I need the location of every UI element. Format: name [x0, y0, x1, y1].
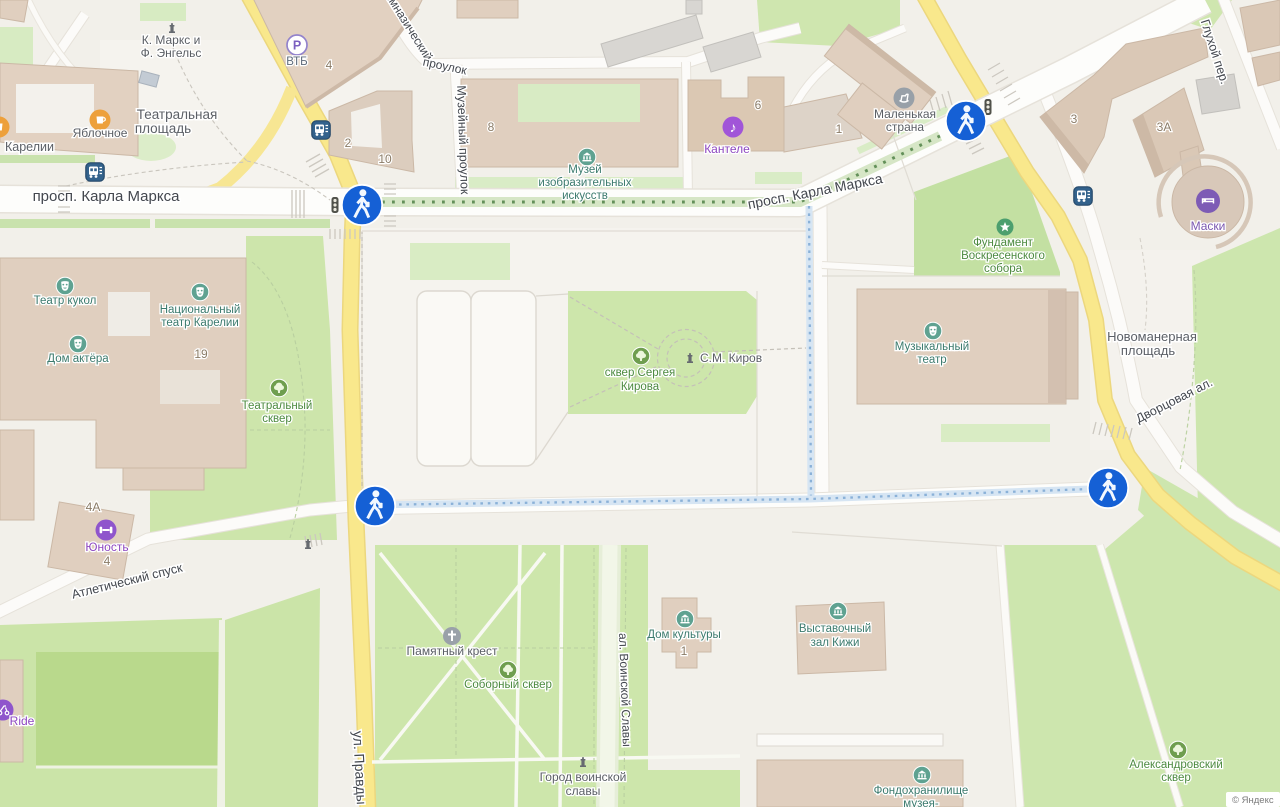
- svg-text:театр Карелии: театр Карелии: [161, 317, 239, 329]
- svg-text:Маски: Маски: [1191, 219, 1226, 233]
- svg-text:Дом культуры: Дом культуры: [647, 629, 721, 641]
- svg-text:© Яндекс: © Яндекс: [1232, 795, 1274, 806]
- svg-text:Воскресенского: Воскресенского: [961, 250, 1045, 262]
- svg-text:Маленькая: Маленькая: [874, 107, 936, 121]
- svg-text:4: 4: [104, 554, 111, 568]
- svg-text:8: 8: [488, 120, 495, 134]
- svg-text:3А: 3А: [1157, 120, 1172, 134]
- svg-text:♪: ♪: [730, 119, 737, 135]
- svg-text:6: 6: [755, 98, 762, 112]
- svg-text:Ride: Ride: [10, 714, 35, 728]
- svg-text:Город воинской: Город воинской: [540, 770, 627, 784]
- svg-text:площадь: площадь: [135, 121, 191, 136]
- svg-text:Александровский: Александровский: [1129, 759, 1223, 771]
- svg-text:1: 1: [681, 644, 688, 658]
- svg-text:2: 2: [345, 136, 352, 150]
- svg-text:искусств: искусств: [562, 190, 608, 202]
- svg-text:Карелии: Карелии: [5, 140, 54, 154]
- svg-text:сквер: сквер: [262, 413, 292, 425]
- svg-text:3: 3: [1071, 112, 1078, 126]
- svg-text:Памятный крест: Памятный крест: [407, 644, 498, 658]
- svg-text:Театральная: Театральная: [137, 107, 218, 122]
- svg-text:К. Маркс и: К. Маркс и: [142, 33, 201, 47]
- svg-text:сквер: сквер: [1161, 772, 1191, 784]
- svg-text:сквер Сергея: сквер Сергея: [605, 367, 675, 379]
- svg-text:4: 4: [326, 58, 333, 72]
- svg-text:Новоманерная: Новоманерная: [1107, 329, 1197, 344]
- svg-text:театр: театр: [917, 354, 946, 366]
- svg-text:Юность: Юность: [85, 540, 128, 554]
- svg-text:1: 1: [836, 122, 843, 136]
- svg-text:Кирова: Кирова: [621, 381, 660, 393]
- svg-text:собора: собора: [984, 263, 1023, 275]
- svg-text:площадь: площадь: [1121, 343, 1176, 358]
- svg-text:Выставочный: Выставочный: [799, 623, 871, 635]
- svg-text:P: P: [293, 38, 301, 52]
- svg-text:Театр кукол: Театр кукол: [34, 295, 97, 307]
- svg-text:музея-: музея-: [903, 798, 939, 807]
- svg-text:Соборный сквер: Соборный сквер: [464, 679, 552, 691]
- svg-text:Кантеле: Кантеле: [704, 142, 750, 156]
- svg-text:Ф. Энгельс: Ф. Энгельс: [141, 46, 202, 60]
- svg-text:Музей: Музей: [568, 164, 601, 176]
- svg-text:Дом актёра: Дом актёра: [47, 353, 109, 365]
- svg-text:Театральный: Театральный: [242, 400, 313, 412]
- svg-text:страна: страна: [886, 120, 924, 134]
- svg-text:4А: 4А: [86, 500, 101, 514]
- svg-text:Фундамент: Фундамент: [973, 237, 1034, 249]
- svg-text:ВТБ: ВТБ: [286, 56, 307, 68]
- svg-text:Фондохранилище: Фондохранилище: [874, 785, 969, 797]
- svg-text:Яблочное: Яблочное: [73, 126, 128, 140]
- svg-text:просп. Карла Маркса: просп. Карла Маркса: [33, 188, 181, 205]
- svg-text:зал Кижи: зал Кижи: [811, 637, 860, 649]
- svg-text:10: 10: [378, 152, 392, 166]
- svg-text:19: 19: [194, 347, 208, 361]
- svg-text:славы: славы: [566, 784, 601, 798]
- svg-text:Национальный: Национальный: [160, 304, 241, 316]
- svg-text:С.М. Киров: С.М. Киров: [700, 351, 762, 365]
- svg-text:Музыкальный: Музыкальный: [895, 341, 969, 353]
- svg-text:изобразительных: изобразительных: [538, 177, 631, 189]
